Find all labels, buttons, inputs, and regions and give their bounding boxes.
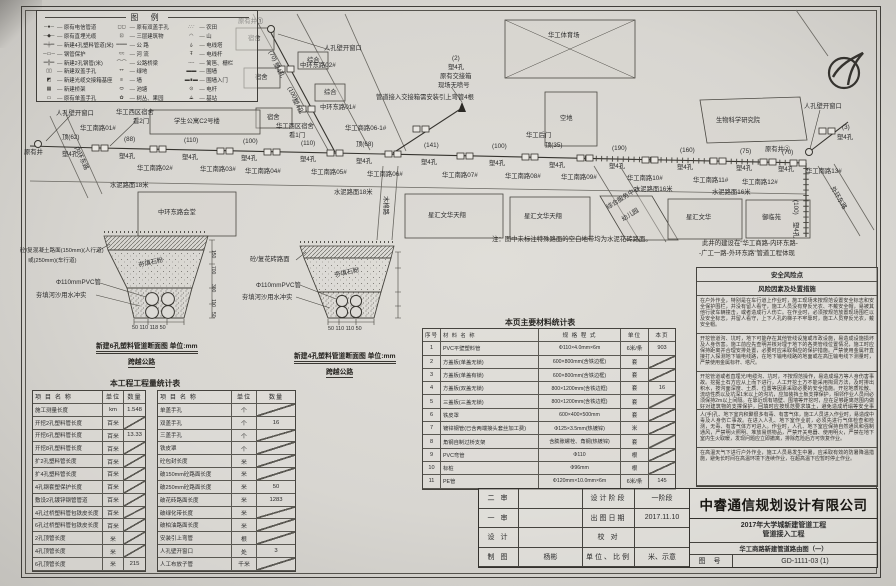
plan-label: (100) [792, 200, 798, 215]
col-header: 单位 [621, 329, 649, 341]
table-row: 4 方盖板(双盖无锁) 800×1200mm(含铁边框) 套 16 [423, 382, 675, 395]
item-qty [257, 558, 295, 570]
table-row: 单盖手孔 个 [158, 404, 295, 417]
plan-label: 人孔壁开窗口 [324, 46, 362, 52]
legend-title: 图 例 [41, 12, 253, 23]
legend-label: 新建4孔塑料管道(米) [57, 41, 114, 49]
legend-symbol-icon: ▬▬ [183, 68, 199, 74]
plan-label: 星汇文华天翔 [428, 213, 466, 219]
item-qty [124, 545, 145, 557]
legend-label: 新建双盖手孔 [57, 67, 96, 75]
item-name: 方盖板(双盖无锁) [441, 382, 539, 394]
item-spec: 800×1200mm(含铁边框) [539, 382, 621, 394]
item-qty [649, 356, 675, 368]
legend-label: 原有直埋光缆 [57, 32, 96, 40]
item-qty [257, 455, 295, 467]
item-unit: 米 [103, 532, 124, 544]
plan-label: 塑4孔 [736, 166, 752, 172]
plan-label: 700 [210, 266, 215, 274]
legend-symbol-icon: ◠ [183, 33, 199, 39]
legend-label: 新建光缆交接箱基座 [57, 76, 112, 84]
legend-item: ⬭ 池塘 [114, 85, 184, 94]
legend-item: ≈≈ 河 流 [114, 49, 184, 58]
company-logo-icon [820, 46, 868, 94]
item-name: 角钢自制过桥支架 [441, 435, 539, 447]
legend-label: 基站 [199, 94, 217, 102]
legend-item: ⊙ 电杆 [183, 85, 253, 94]
table-header-row: 项 目 名 称 单位 数量 [158, 391, 295, 404]
plan-label: 看2门 [133, 119, 149, 125]
item-name: 破柏油路面长度 [158, 519, 232, 531]
item-unit: 米 [232, 519, 257, 531]
item-spec: Φ96mm [539, 462, 621, 474]
plan-label: (3) [842, 125, 850, 131]
plan-label: 砼/复混凝土路面(150mm)(人行道) [20, 249, 104, 255]
legend-column: ◻◻ 原有双盖手孔 ⊡ 三层建筑物 ═══ 公 路 ≈≈ 河 流 ⌒⌒ 公路桥梁 [114, 23, 184, 102]
item-qty [257, 442, 295, 454]
legend-label: 篱笆、栅栏 [199, 59, 233, 67]
plan-label: 塑4孔 [182, 155, 198, 161]
item-no: 11 [423, 475, 441, 487]
plan-label: 塑4孔 [271, 62, 284, 79]
col-header: 序号 [423, 329, 441, 341]
table-row: 6孔过桥塑料管包铁皮长度 百米 [33, 519, 145, 532]
title-block-row: 二 审 设计阶段 一阶段 [479, 489, 689, 509]
col-header: 材 料 名 称 [441, 329, 539, 341]
item-no: 7 [423, 422, 441, 434]
plan-label: 塑4孔 [549, 163, 565, 169]
item-unit: 米 [621, 422, 649, 434]
plan-label: 华工南路03# [200, 167, 236, 173]
legend-item: ▬∎▬ 围墙入门 [183, 76, 253, 85]
legend-symbol-icon: ─●─ [41, 24, 57, 30]
legend-symbol-icon: ≈≈ [114, 51, 130, 57]
plan-label: 塑4孔 [241, 156, 257, 162]
item-name: 铁皮罩 [441, 409, 539, 421]
table-row: 6 铁皮罩 600×400×500mm 套 [423, 409, 675, 422]
project-table-title: 本工程工程量统计表 [110, 378, 180, 389]
materials-table: 序号 材 料 名 称 规 格 程 式 单位 本页 1 PVC平壁塑料管 Φ110… [422, 328, 676, 490]
item-name: 敷设2孔镀锌钢管管道 [33, 494, 103, 506]
table-row: 双盖手孔 个 16 [158, 417, 295, 430]
tb-value: 一阶段 [635, 489, 689, 508]
plan-label: 夯填石粉 [138, 258, 164, 269]
item-qty [649, 422, 675, 434]
plan-label: 外环东路 [829, 186, 847, 211]
item-spec: 800×1200mm(含铁边框) [539, 395, 621, 407]
tb-value [519, 509, 583, 528]
table-row: 6孔顶管长度 米 215 [33, 558, 145, 571]
sheet-title: 华工商路新建管道路由图（一） [690, 543, 877, 555]
item-name: PVC弯管 [441, 449, 539, 461]
item-unit: 百米 [103, 519, 124, 531]
item-qty [124, 442, 145, 454]
plan-label: 学生公寓C2号楼 [174, 119, 220, 125]
plan-label: 50 [210, 312, 215, 318]
plan-label: 华工南路09# [561, 175, 597, 181]
plan-label: 华工南路08# [505, 174, 541, 180]
item-no: 4 [423, 382, 441, 394]
item-qty [124, 468, 145, 480]
legend-label: 电杆 [199, 85, 217, 93]
legend-label: 三层建筑物 [130, 32, 164, 40]
plan-label: 水泥路面16米 [712, 190, 751, 196]
table-row: 施工测量长度 km 1.548 [33, 404, 145, 417]
item-name: 双盖手孔 [158, 417, 232, 429]
item-unit: 套 [621, 395, 649, 407]
plan-label: 华工南路02# [137, 166, 173, 172]
item-qty: 50 [257, 481, 295, 493]
item-name: 6孔顶管长度 [33, 558, 103, 570]
section-a-road: 跨越公路 [128, 356, 155, 368]
item-unit: 6米/条 [621, 475, 649, 487]
legend-item: ◻◻ 原有双盖手孔 [114, 23, 184, 32]
table-row: 破150mm砼路面长度 米 [158, 468, 295, 481]
legend-item: ≡ 墙 [114, 76, 184, 85]
item-name: 方盖板(单盖有锁) [441, 369, 539, 381]
item-qty [257, 404, 295, 416]
table-row: 开挖2孔塑料管长度 百米 [33, 417, 145, 430]
plan-label: 华工西区宿舍 [276, 124, 314, 130]
plan-label: (2) [452, 56, 460, 62]
legend-label: 树丛、果园 [130, 94, 164, 102]
item-qty [124, 417, 145, 429]
table-row: 扩4孔塑料管长度 百米 [33, 468, 145, 481]
table-row: 2 方盖板(单盖无锁) 600×800mm(含铁边框) 套 [423, 356, 675, 369]
plan-label: 300 [210, 284, 215, 292]
legend-label: 电线杆 [199, 50, 222, 58]
plan-label: 御临苑 [762, 215, 781, 221]
item-unit: 套 [621, 435, 649, 447]
plan-label: 塑4孔 [609, 164, 625, 170]
item-qty [124, 532, 145, 544]
plan-label: (88) [124, 137, 135, 143]
legend-label: 钢管保护 [57, 50, 85, 58]
legend-item: ▦ 新建桥架 [41, 85, 114, 94]
section-a-caption: 新建6孔塑料管道断面图 单位:mm [96, 340, 198, 354]
legend-label: 墙 [130, 76, 142, 84]
legend-item: ─▭─ 钢管保护 [41, 49, 114, 58]
item-unit: 百米 [103, 468, 124, 480]
legend-symbol-icon: ⍙ [183, 42, 199, 48]
plan-label: 塑4孔 [356, 159, 372, 165]
item-name: 开挖6孔塑料管长度 [33, 430, 103, 442]
plan-label: 内环东路 [72, 146, 88, 171]
plan-label: 中环东路会堂 [158, 210, 196, 216]
plan-label: 夯填河沙用水冲实 [242, 295, 292, 301]
tb-label: 一 审 [479, 509, 519, 528]
plan-label: 华工南路12# [742, 180, 778, 186]
legend-symbol-icon: ═══ [114, 42, 130, 48]
table-row: 破柏油路面长度 米 [158, 519, 295, 532]
title-block-grid: 二 审 设计阶段 一阶段 一 审 出图日期 2017.11.10 设 计 校 对… [479, 489, 690, 567]
plan-label: Φ110mmPVC管 [56, 280, 101, 286]
item-unit: 米 [232, 481, 257, 493]
legend-item: ╌╌ 篱笆、栅栏 [183, 58, 253, 67]
item-qty [124, 494, 145, 506]
legend-symbol-icon: ─▭─ [41, 51, 57, 57]
legend-label: 河 流 [130, 50, 149, 58]
legend-column: ─●─ 原有电信管道 ─◆─ 原有直埋光缆 ═╪═ 新建4孔塑料管道(米) ─▭… [41, 23, 114, 102]
table-row: 破250mm砼路面长度 米 50 [158, 481, 295, 494]
table-row: 8 角钢自制过桥支架 含膨胀螺栓、角钢(热镀锌) 套 [423, 435, 675, 448]
col-header: 单位 [103, 391, 124, 403]
item-no: 10 [423, 462, 441, 474]
legend-item: ▬▬ 围墙 [183, 67, 253, 76]
plan-label: 宿舍 [267, 115, 280, 121]
plan-label: 水泥路面18米 [334, 190, 373, 196]
plan-label: (141) [424, 143, 439, 149]
item-name: 破花砖路面长度 [158, 494, 232, 506]
item-unit: 根 [232, 532, 257, 544]
plan-label: 水泥路面18米 [110, 183, 149, 189]
table-row: 1 PVC平壁塑料管 Φ110×4.0mm×6m 6米/条 903 [423, 342, 675, 355]
table-row: 4孔顶管长度 米 [33, 545, 145, 558]
legend-label: 原有电信管道 [57, 23, 96, 31]
title-block-row: 制 图 杨彬 单位、比例 米、示意 [479, 548, 689, 568]
legend-label: 围墙 [199, 67, 217, 75]
item-unit: 个 [232, 442, 257, 454]
item-qty [124, 519, 145, 531]
table-row: 敷设2孔镀锌钢管管道 百米 [33, 494, 145, 507]
plan-label: 塑4孔 [792, 222, 798, 238]
table-row: 铁皮罩 个 [158, 442, 295, 455]
legend-item: ═══ 公 路 [114, 41, 184, 50]
plan-label: 综合 [324, 90, 337, 96]
item-qty [649, 395, 675, 407]
plan-label: 看1门 [289, 133, 305, 139]
item-spec: Φ125×3.5mm(热镀锌) [539, 422, 621, 434]
item-name: 开挖8孔塑料管长度 [33, 442, 103, 454]
table-row: 2孔顶管长度 米 [33, 532, 145, 545]
legend-item: ◩ 新建光缆交接箱基座 [41, 76, 114, 85]
item-spec: 600×800mm(含铁边框) [539, 369, 621, 381]
plan-label: 星汇文华天翔 [524, 214, 562, 220]
plan-label: 木棉路 [382, 196, 388, 215]
legend-symbol-icon: ⌒⌒ [114, 59, 130, 66]
plan-label: 华工南路10# [627, 176, 663, 182]
legend-symbol-icon: ▯▯ [41, 68, 57, 74]
tb-label: 二 审 [479, 489, 519, 508]
table-row: 3 方盖板(单盖有锁) 600×800mm(含铁边框) 套 [423, 369, 675, 382]
safety-paragraph: 人(手)孔、地下室内积聚很多有毒、有害气体，施工人员进入作业时，易造成中毒及人身… [697, 410, 877, 448]
item-spec: 600×400×500mm [539, 409, 621, 421]
plan-label: 华工南路11# [693, 178, 728, 184]
item-name: 三盖板(三盖无锁) [441, 395, 539, 407]
tb-label: 制 图 [479, 548, 519, 567]
legend-symbol-icon: ▦ [41, 86, 57, 92]
item-unit: 根 [621, 462, 649, 474]
legend-item: Ŧ 电线杆 [183, 49, 253, 58]
item-no: 6 [423, 409, 441, 421]
item-name: 施工测量长度 [33, 404, 103, 416]
plan-label: 人孔壁开窗口 [56, 111, 94, 117]
legend-label: 公 路 [130, 41, 149, 49]
legend-symbol-icon: ≡ [114, 77, 130, 83]
plan-label: 综合 [307, 58, 320, 64]
plan-label: 砼/复花砖路面 [250, 257, 290, 263]
tb-label: 出图日期 [583, 509, 635, 528]
item-unit: 百米 [103, 442, 124, 454]
item-qty: 16 [649, 382, 675, 394]
plan-label: 原有井② [765, 147, 790, 153]
plan-label: 原有井 [24, 150, 43, 156]
tb-value [519, 489, 583, 508]
drawing-number-label: 图 号 [690, 555, 733, 567]
legend-item: ─●─ 原有电信管道 [41, 23, 114, 32]
col-header: 规 格 程 式 [539, 329, 621, 341]
title-block-row: 一 审 出图日期 2017.11.10 [479, 509, 689, 529]
item-name: 砼包封长度 [158, 455, 232, 467]
safety-panel: 安全风险点 风险因素及处置措施 在户外作业，特别是在车行道上作业时，施工现场未按… [696, 267, 878, 487]
item-name: 2孔顶管长度 [33, 532, 103, 544]
legend-label: 绿地 [130, 67, 148, 75]
plan-label: 人孔壁开窗口 [804, 104, 842, 110]
table-row: 破绿化带长度 米 [158, 507, 295, 520]
item-name: 破250mm砼路面长度 [158, 481, 232, 493]
item-name: 4孔钢套塑保护长度 [33, 481, 103, 493]
item-name: 三盖手孔 [158, 430, 232, 442]
legend-item: ═╪═ 新建4孔塑料管道(米) [41, 41, 114, 50]
plan-label: (110) [301, 141, 315, 147]
item-unit: 6米/条 [621, 342, 649, 354]
item-qty [257, 430, 295, 442]
item-qty [649, 435, 675, 447]
plan-label: 塑4孔 [421, 160, 437, 166]
col-header: 数量 [124, 391, 145, 403]
tb-label: 单位、比例 [583, 548, 635, 567]
plan-label: (160) [680, 148, 695, 154]
safety-paragraph: 开挖管道沟、坑时，地下可能存在其他管线设施或市政设施，易造成设施损坏及人身伤害。… [697, 334, 877, 372]
plan-label: 塑4孔 [448, 65, 464, 71]
legend-label: 围墙入门 [199, 76, 227, 84]
plan-label: 华工南路01# [80, 126, 116, 132]
legend-label: 新建2孔钢管(米) [57, 59, 103, 67]
item-qty: 145 [649, 475, 675, 487]
item-unit: 个 [232, 430, 257, 442]
plan-label: 或(250mm)(车行道) [28, 259, 76, 265]
item-name: 扩4孔塑料管长度 [33, 468, 103, 480]
item-spec: Φ120mm×10.0mm×6m [539, 475, 621, 487]
plan-label: Φ110mmPVC管 [256, 283, 301, 289]
well-note-line2: -广工一路-外环东路”管道工程体现 [699, 248, 795, 257]
table-row: 开挖6孔塑料管长度 百米 13.33 [33, 430, 145, 443]
tb-label: 设 计 [479, 528, 519, 547]
legend-item: ⌒⌒ 公路桥梁 [114, 58, 184, 67]
plan-label: 塑4孔 [837, 135, 853, 141]
tb-value: 2017.11.10 [635, 509, 689, 528]
legend-item: ▯▯ 新建双盖手孔 [41, 67, 114, 76]
project-line2: 管道接入工程 [763, 531, 805, 540]
item-qty: 3 [257, 545, 295, 557]
item-unit: 套 [621, 382, 649, 394]
legend-symbol-icon: ⬭ [114, 86, 130, 92]
col-header: 单位 [232, 391, 257, 403]
plan-label: 华工南路06# [367, 172, 403, 178]
item-qty: 13.33 [124, 430, 145, 442]
item-qty [124, 455, 145, 467]
plan-label: 华工南路05# [311, 170, 347, 176]
item-no: 2 [423, 356, 441, 368]
item-unit: 百米 [103, 430, 124, 442]
legend-label: 农田 [199, 23, 217, 31]
legend-symbol-icon: ⊡ [114, 33, 130, 39]
legend-item: ✿ 树丛、果园 [114, 93, 184, 102]
item-name: 方盖板(单盖无锁) [441, 356, 539, 368]
item-qty: 1283 [257, 494, 295, 506]
legend-symbol-icon: ∴∵ [183, 24, 199, 30]
safety-paragraph: 在户外作业，特别是在车行道上作业时，施工现场未按规范设置安全标志和安全保护围栏，… [697, 296, 877, 334]
plan-label: 顶(35) [545, 143, 563, 149]
item-unit: 套 [621, 369, 649, 381]
title-block-right: 中睿通信规划设计有限公司 2017年大学城新建管道工程 管道接入工程 华工商路新… [690, 489, 877, 567]
legend: 图 例 ─●─ 原有电信管道 ─◆─ 原有直埋光缆 ═╪═ 新建4孔塑料管道(米… [36, 10, 258, 102]
legend-item: ∴∵ 农田 [183, 23, 253, 32]
legend-symbol-icon: ╌╌ [183, 60, 199, 66]
pavement-note: 注：图中未标注特殊路面的空白地带均为水泥花砖路面。 [492, 234, 652, 243]
item-qty [257, 507, 295, 519]
plan-label: 华工体育场 [548, 33, 579, 39]
item-name: 破绿化带长度 [158, 507, 232, 519]
legend-column: ∴∵ 农田 ◠ 山 ⍙ 电线塔 Ŧ 电线杆 ╌╌ 篱笆、栅栏 [183, 23, 253, 102]
section-b-caption: 新建4孔塑料管道断面图 单位:mm [294, 350, 396, 364]
item-name: 4孔顶管长度 [33, 545, 103, 557]
col-header: 项 目 名 称 [158, 391, 232, 403]
item-unit: 米 [232, 494, 257, 506]
item-unit: 米 [103, 545, 124, 557]
legend-symbol-icon: ═╬═ [41, 60, 57, 66]
plan-label: 50 110 118 50 [132, 326, 166, 331]
item-unit: 根 [621, 449, 649, 461]
plan-label: 管道接入交接箱需安装引上弯管4根 [376, 95, 474, 101]
safety-title: 安全风险点 [697, 268, 877, 282]
legend-symbol-icon: ✿ [114, 95, 130, 101]
item-name: 镀锌钢管(已含两端接头套丝加工费) [441, 422, 539, 434]
plan-label: (100) [492, 144, 507, 150]
legend-label: 公路桥梁 [130, 59, 158, 67]
plan-label: 华工西区宿舍 [116, 110, 154, 116]
item-spec: 600×800mm(含铁边框) [539, 356, 621, 368]
project-table-left: 项 目 名 称 单位 数量 施工测量长度 km 1.548 开挖2孔塑料管长度 … [32, 390, 146, 572]
item-name: 破150mm砼路面长度 [158, 468, 232, 480]
drawing-number: GD-1111-03 (1) [733, 555, 877, 567]
plan-label: 塑4孔 [119, 154, 135, 160]
item-name: 4孔过桥塑料管包铁皮长度 [33, 507, 103, 519]
legend-item: ═╬═ 新建2孔钢管(米) [41, 58, 114, 67]
legend-item: ─◆─ 原有直埋光缆 [41, 32, 114, 41]
table-row: 4孔过桥塑料管包铁皮长度 百米 [33, 507, 145, 520]
legend-symbol-icon: Ŧ [183, 51, 199, 57]
drawing-number-row: 图 号 GD-1111-03 (1) [690, 555, 877, 567]
plan-label: 华工南路13# [806, 169, 842, 175]
item-unit: 百米 [103, 507, 124, 519]
legend-item: 艹 绿地 [114, 67, 184, 76]
item-qty: 16 [257, 417, 295, 429]
legend-symbol-icon: 艹 [114, 68, 130, 75]
project-line1: 2017年大学城新建管道工程 [741, 522, 827, 531]
item-name: 安装引上弯管 [158, 532, 232, 544]
safety-subtitle: 风险因素及处置措施 [697, 282, 877, 296]
tb-value [635, 528, 689, 547]
item-spec: Φ110×4.0mm×6m [539, 342, 621, 354]
item-name: 人工布放子管 [158, 558, 232, 570]
item-qty [257, 532, 295, 544]
item-no: 5 [423, 395, 441, 407]
item-unit: 百米 [103, 455, 124, 467]
item-unit: 米 [232, 468, 257, 480]
plan-label: 夯填河沙用水冲实 [36, 293, 86, 299]
tb-value: 杨彬 [519, 548, 583, 567]
